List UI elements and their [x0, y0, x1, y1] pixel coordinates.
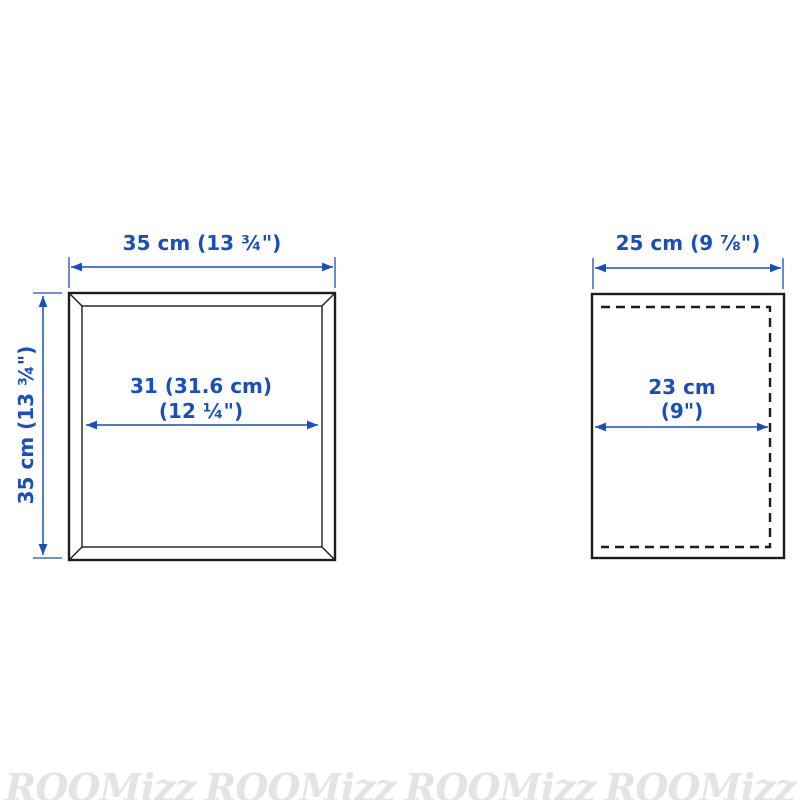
side-inner-depth-label-line1: 23 cm [648, 375, 716, 399]
dimension-diagram: 35 cm (13 ¾") 35 cm (13 ¾") 31 (31.6 cm)… [0, 0, 800, 800]
side-inner-depth-label-line2: (9") [661, 399, 704, 423]
side-depth-dimension: 25 cm (9 ⅞") [593, 231, 783, 289]
front-view: 35 cm (13 ¾") 35 cm (13 ¾") 31 (31.6 cm)… [14, 231, 335, 560]
front-width-dimension: 35 cm (13 ¾") [69, 231, 335, 288]
front-height-dimension: 35 cm (13 ¾") [14, 293, 62, 558]
front-outer-frame [69, 293, 335, 560]
front-inner-width-label-line2: (12 ¼") [159, 399, 243, 423]
front-width-label: 35 cm (13 ¾") [123, 231, 282, 255]
front-height-label: 35 cm (13 ¾") [14, 346, 38, 505]
front-inner-width-label-line1: 31 (31.6 cm) [130, 374, 272, 398]
diagram-svg: 35 cm (13 ¾") 35 cm (13 ¾") 31 (31.6 cm)… [0, 0, 800, 800]
side-view: 25 cm (9 ⅞") 23 cm (9") [592, 231, 784, 558]
side-depth-label: 25 cm (9 ⅞") [616, 231, 761, 255]
side-outer-panel [592, 294, 784, 558]
